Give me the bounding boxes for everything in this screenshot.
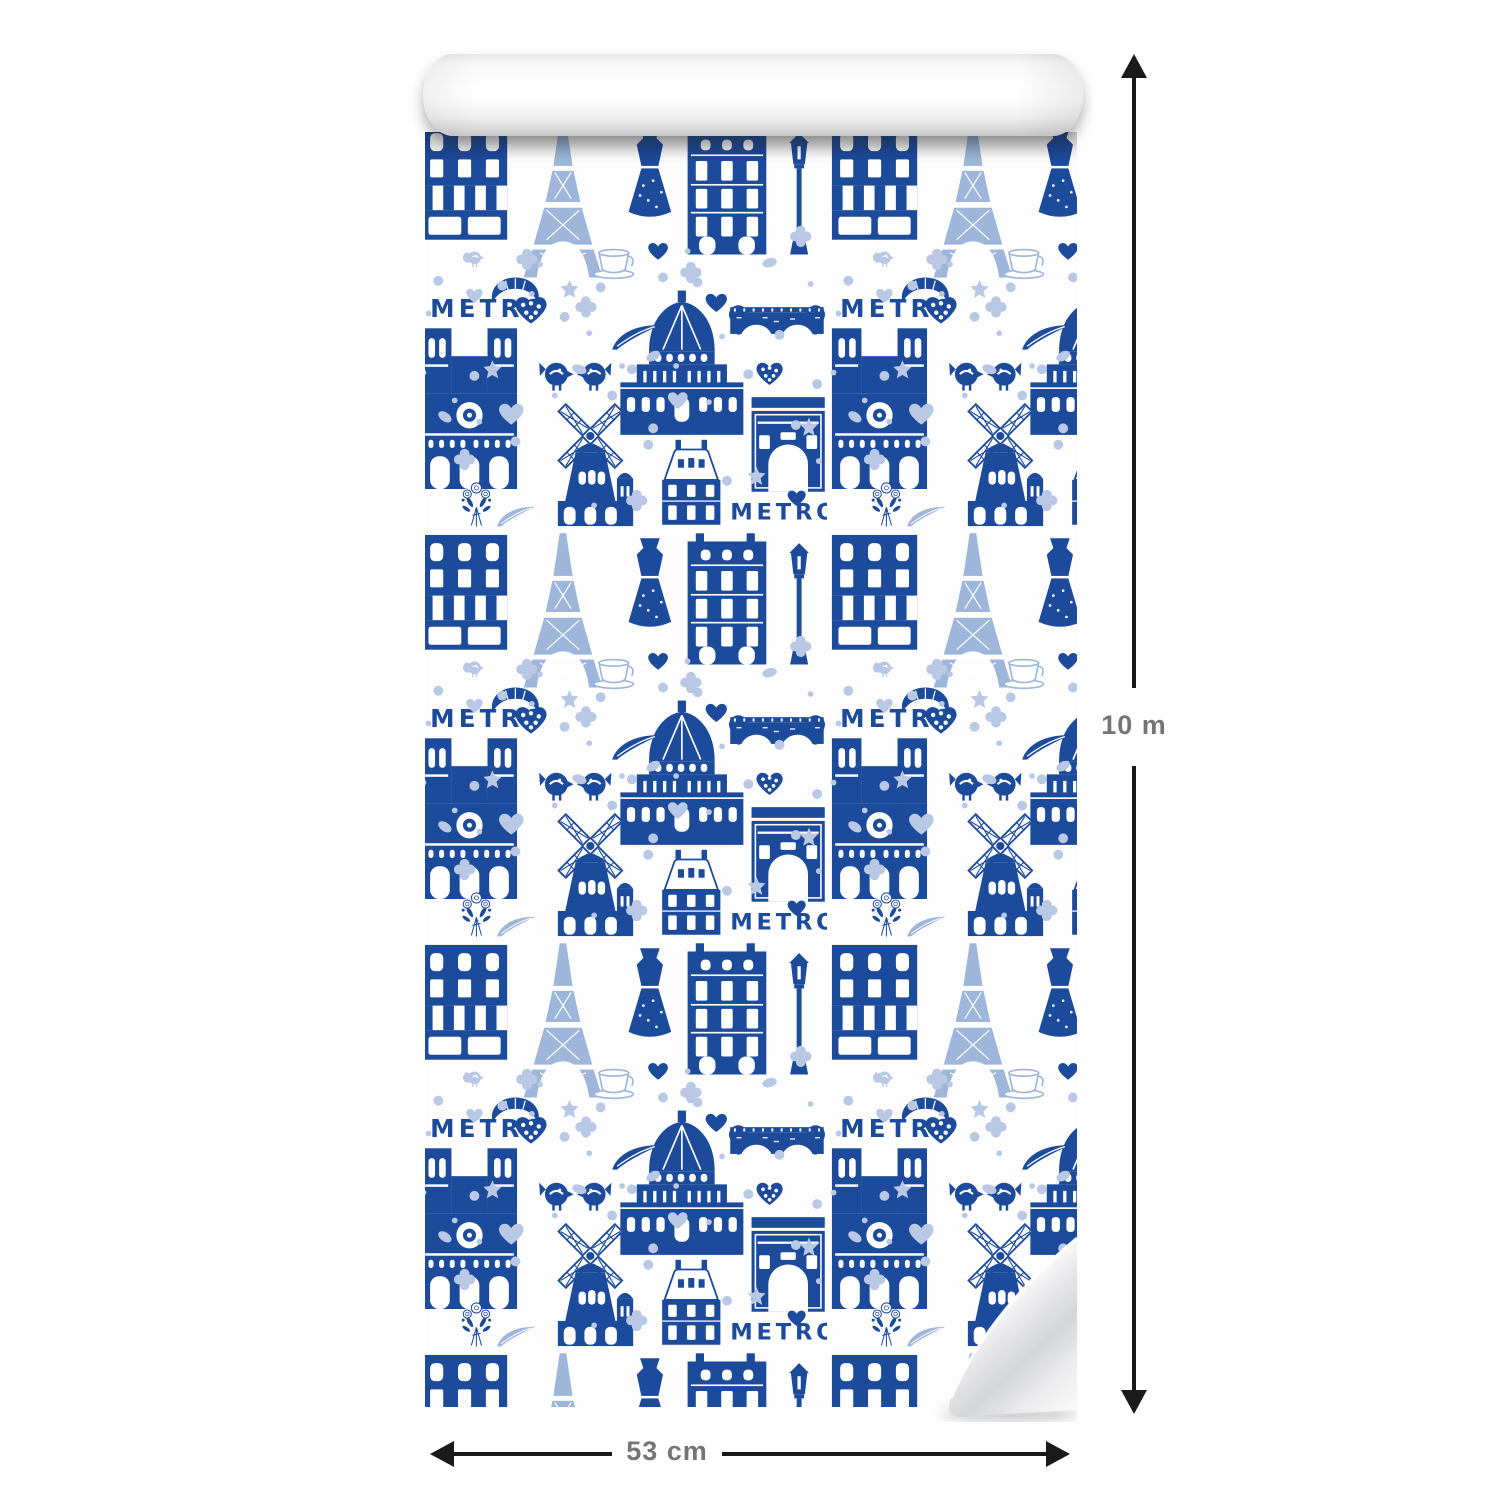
- wallpaper-roll-top: [423, 54, 1083, 136]
- product-photo: METRO: [0, 0, 1500, 1500]
- arrow-down-icon: [1121, 1390, 1147, 1414]
- arrow-right-icon: [1046, 1441, 1070, 1467]
- wallpaper-sheet: METRO: [425, 132, 1077, 1422]
- roll-end-shading: [423, 54, 1083, 136]
- height-arrow-line-bottom: [1132, 766, 1136, 1392]
- sheet-pattern-fill: [425, 132, 1077, 1407]
- paris-pattern: METRO: [425, 132, 1077, 1422]
- width-arrow-line-left: [450, 1452, 612, 1456]
- width-label: 53 cm: [605, 1436, 729, 1467]
- height-arrow-line-top: [1132, 74, 1136, 688]
- height-label: 10 m: [1064, 710, 1204, 741]
- width-arrow-line-right: [722, 1452, 1050, 1456]
- roll-shadow-band: [425, 132, 1077, 162]
